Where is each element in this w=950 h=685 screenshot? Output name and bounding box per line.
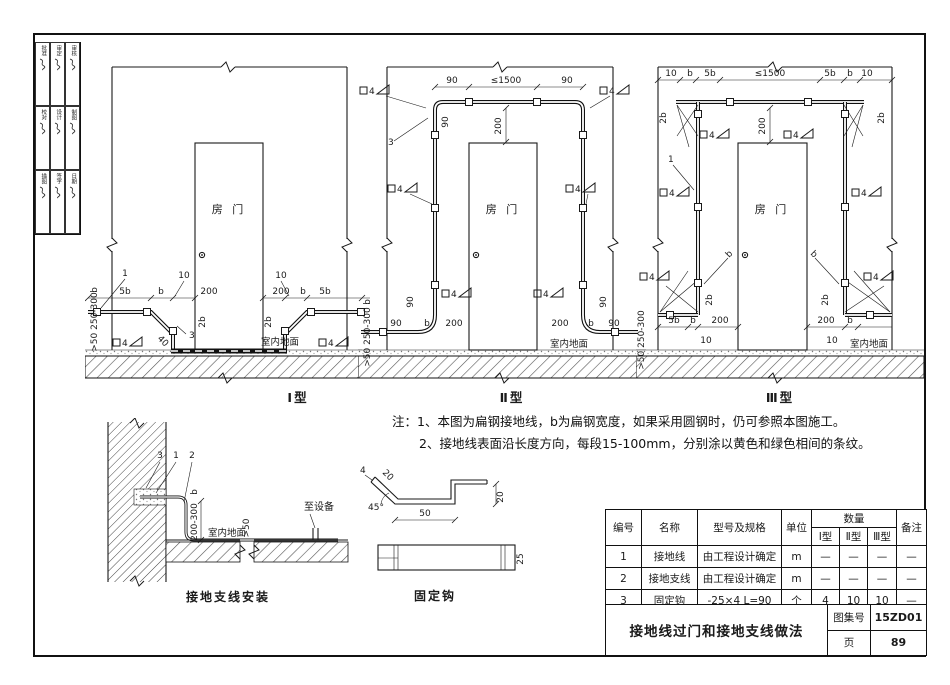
door-label: 房 门 bbox=[486, 202, 521, 216]
materials-table: 编号 名称 型号及规格 单位 数量 备注 Ⅰ型 Ⅱ型 Ⅲ型 1 接地线 由工程设… bbox=[605, 509, 927, 612]
signature-cell: 描图 bbox=[35, 170, 50, 234]
dim-label: 90 bbox=[599, 296, 609, 308]
dim-label: b bbox=[158, 287, 164, 297]
callout-1: 1 bbox=[122, 269, 128, 279]
dim-label: 40 bbox=[155, 334, 170, 349]
floor-slab bbox=[636, 350, 924, 383]
door: 房 门 bbox=[738, 143, 807, 350]
door-label: 房 门 bbox=[755, 202, 790, 216]
dim-label: b bbox=[847, 316, 853, 326]
dim-label: 90 bbox=[406, 296, 416, 308]
cell-remark: — bbox=[897, 568, 927, 590]
cell-name: 接地线 bbox=[642, 546, 698, 568]
dim-label: b bbox=[724, 249, 735, 260]
weld-clamp-symbol bbox=[388, 183, 417, 195]
dim-label: ≤1500 bbox=[491, 76, 522, 86]
dim-label: 200-300 bbox=[190, 503, 200, 541]
dim-label: 10 bbox=[826, 336, 838, 346]
dim-label: 10 bbox=[178, 271, 190, 281]
signature-cell: 制图 bbox=[65, 106, 80, 170]
diagram-type1: 房 门 1 5b b 10 200 200 b 5b 1 bbox=[85, 50, 380, 410]
dim-label: 25 bbox=[516, 553, 526, 564]
dim-label: >50 250-300 bbox=[637, 310, 647, 370]
cell-qty3: — bbox=[868, 568, 897, 590]
weld-clamp-symbol bbox=[600, 85, 629, 97]
col-header-type1: Ⅰ型 bbox=[812, 528, 840, 546]
dim-label: b bbox=[687, 69, 693, 79]
signature-scribble bbox=[68, 121, 78, 135]
hook-plan-view: 25 bbox=[378, 545, 526, 570]
dim-label: 10 bbox=[665, 69, 677, 79]
cell-unit: m bbox=[782, 546, 812, 568]
weld-clamp-symbol bbox=[566, 183, 595, 195]
dim-label: 90 bbox=[390, 319, 402, 329]
signature-label: 设计 bbox=[55, 109, 61, 120]
signature-scribble bbox=[68, 185, 78, 199]
notes: 注：1、本图为扁钢接地线，b为扁钢宽度，如果采用圆钢时，仍可参照本图施工。 2、… bbox=[392, 411, 897, 455]
title-block: 接地线过门和接地支线做法 图集号 15ZD01 页 89 bbox=[605, 604, 927, 656]
dim-label: 200 bbox=[200, 287, 217, 297]
to-equipment-label: 至设备 bbox=[304, 500, 334, 513]
dim-label: 200 bbox=[445, 319, 462, 329]
dim-label: 20 bbox=[380, 468, 395, 483]
col-header-no: 编号 bbox=[606, 510, 642, 546]
weld-clamp-symbol bbox=[113, 337, 142, 349]
dim-label: 5b bbox=[319, 287, 331, 297]
dim-label: 200 bbox=[272, 287, 289, 297]
dim-label: 5b bbox=[704, 69, 716, 79]
signature-cell: 校对 bbox=[35, 106, 50, 170]
signature-label: 签字 bbox=[55, 173, 61, 184]
floor-label: 室内地面 bbox=[550, 338, 588, 350]
weld-clamp-symbol bbox=[660, 187, 689, 199]
cell-spec: 由工程设计确定 bbox=[698, 568, 782, 590]
dim-label: 10 bbox=[700, 336, 712, 346]
dim-label: 90 bbox=[446, 76, 458, 86]
dim-label: b bbox=[690, 316, 696, 326]
signature-scribble bbox=[38, 121, 48, 135]
dim-label: 90 bbox=[441, 116, 451, 128]
weld-clamp-symbol bbox=[784, 129, 813, 141]
col-header-unit: 单位 bbox=[782, 510, 812, 546]
signature-scribble bbox=[53, 57, 63, 71]
dim-label: 45° bbox=[368, 503, 384, 513]
signature-label: 制图 bbox=[70, 109, 76, 120]
dim-label: 2b bbox=[198, 316, 208, 328]
install-caption: 接地支线安装 bbox=[186, 589, 270, 604]
signature-label: 审核 bbox=[70, 45, 76, 56]
weld-clamp-symbol bbox=[864, 271, 893, 283]
door-label: 房 门 bbox=[212, 202, 247, 216]
weld-clamp-symbol bbox=[700, 129, 729, 141]
floor-label: 室内地面 bbox=[261, 336, 299, 348]
signature-block: 批准 审定 审核 校对 设计 制图 描图 签字 日期 bbox=[35, 42, 81, 235]
detail-fixing-hook: 4 20 45° 50 20 25 固定钩 bbox=[355, 462, 535, 607]
dim-label: 5b bbox=[824, 69, 836, 79]
page-number: 89 bbox=[871, 631, 927, 657]
table-row: 1 接地线 由工程设计确定 m — — — — bbox=[606, 546, 927, 568]
dim-label: b bbox=[847, 69, 853, 79]
dim-label: 4 bbox=[360, 466, 366, 476]
type3-caption: Ⅲ型 bbox=[766, 390, 794, 405]
hook-caption: 固定钩 bbox=[414, 588, 456, 603]
dim-label: 90 bbox=[561, 76, 573, 86]
dim-label: 2b bbox=[877, 112, 887, 124]
signature-label: 日期 bbox=[70, 173, 76, 184]
weld-clamp-symbol bbox=[442, 288, 471, 300]
signature-label: 校对 bbox=[40, 109, 46, 120]
cell-remark: — bbox=[897, 546, 927, 568]
drawing-sheet: 4 批准 审定 审核 校对 设计 制图 描图 签字 日期 bbox=[0, 0, 950, 685]
type2-caption: Ⅱ型 bbox=[500, 390, 525, 405]
signature-cell: 审核 bbox=[65, 42, 80, 106]
cell-qty2: — bbox=[840, 568, 868, 590]
signature-scribble bbox=[38, 185, 48, 199]
atlas-no-label: 图集号 bbox=[828, 605, 871, 631]
signature-label: 描图 bbox=[40, 173, 46, 184]
dim-label: b bbox=[90, 287, 100, 293]
dim-label: b bbox=[424, 319, 430, 329]
cell-spec: 由工程设计确定 bbox=[698, 546, 782, 568]
hook-dimensions: 4 20 45° 50 20 bbox=[360, 466, 506, 523]
dim-label: ≤1500 bbox=[755, 69, 786, 79]
weld-clamp-symbol bbox=[360, 85, 389, 97]
signature-label: 审定 bbox=[55, 45, 61, 56]
door: 房 门 bbox=[469, 143, 537, 350]
ground-wire bbox=[88, 309, 365, 352]
weld-clamp-symbol bbox=[852, 187, 881, 199]
signature-scribble bbox=[53, 185, 63, 199]
dim-label: 20 bbox=[496, 491, 506, 503]
sheet-title: 接地线过门和接地支线做法 bbox=[606, 605, 828, 656]
callout-1: 1 bbox=[668, 155, 674, 165]
dimensions: 90 ≤1500 90 3 90 200 90 90 90 b 200 200 bbox=[360, 76, 629, 367]
cell-no: 1 bbox=[606, 546, 642, 568]
dim-label: 5b bbox=[119, 287, 131, 297]
signature-cell: 审定 bbox=[50, 42, 65, 106]
dim-label: >50 250-300 bbox=[363, 307, 373, 367]
col-header-name: 名称 bbox=[642, 510, 698, 546]
cell-qty3: — bbox=[868, 546, 897, 568]
table-row: 2 接地支线 由工程设计确定 m — — — — bbox=[606, 568, 927, 590]
callout-1: 1 bbox=[173, 451, 179, 461]
col-header-spec: 型号及规格 bbox=[698, 510, 782, 546]
dim-label: 200 bbox=[494, 117, 504, 134]
cell-qty2: — bbox=[840, 546, 868, 568]
signature-scribble bbox=[53, 121, 63, 135]
dim-label: 50 bbox=[419, 509, 431, 519]
callout-3: 3 bbox=[157, 451, 163, 461]
col-header-qty: 数量 bbox=[812, 510, 897, 528]
dim-label: 10 bbox=[275, 271, 287, 281]
type1-caption: Ⅰ型 bbox=[287, 390, 308, 405]
callout-3: 3 bbox=[388, 138, 394, 148]
dim-label: >50 250-300 bbox=[90, 292, 100, 352]
dimensions: 10 b 5b ≤1500 5b b 10 2b 2b 200 1 b b bbox=[637, 69, 895, 370]
col-header-type3: Ⅲ型 bbox=[868, 528, 897, 546]
dim-label: b bbox=[363, 299, 373, 305]
signature-scribble bbox=[68, 57, 78, 71]
dim-label: b bbox=[588, 319, 594, 329]
dim-label: b bbox=[300, 287, 306, 297]
weld-clamp-symbol bbox=[319, 337, 348, 349]
dim-label: 200 bbox=[711, 316, 728, 326]
weld-clamp-symbol bbox=[640, 271, 669, 283]
floor-slab bbox=[166, 540, 348, 562]
diagram-type2: 房 门 90 ≤1500 90 3 90 200 bbox=[358, 50, 648, 410]
dim-label: 200 bbox=[551, 319, 568, 329]
dim-label: b bbox=[190, 489, 200, 495]
floor-label: 室内地面 bbox=[850, 338, 888, 350]
cell-qty1: — bbox=[812, 568, 840, 590]
detail-branch-install: 3 1 2 b 200-300 >50 室内地面 至设备 接地支线安装 bbox=[100, 418, 355, 613]
diagram-type3: 房 门 10 b bbox=[636, 50, 926, 410]
weld-clamp-symbol bbox=[534, 288, 563, 300]
signature-cell: 设计 bbox=[50, 106, 65, 170]
col-header-remark: 备注 bbox=[897, 510, 927, 546]
callout-3: 3 bbox=[189, 331, 195, 341]
note-line-1: 注：1、本图为扁钢接地线，b为扁钢宽度，如果采用圆钢时，仍可参照本图施工。 bbox=[392, 411, 897, 433]
signature-cell: 日期 bbox=[65, 170, 80, 234]
atlas-no-value: 15ZD01 bbox=[871, 605, 927, 631]
signature-cell: 批准 bbox=[35, 42, 50, 106]
floor-label: 室内地面 bbox=[208, 527, 246, 539]
signature-scribble bbox=[38, 57, 48, 71]
page-label: 页 bbox=[828, 631, 871, 657]
cell-qty1: — bbox=[812, 546, 840, 568]
note-line-2: 2、接地线表面沿长度方向，每段15-100mm，分别涂以黄色和绿色相间的条纹。 bbox=[392, 433, 897, 455]
dim-label: 10 bbox=[861, 69, 873, 79]
dim-label: 90 bbox=[608, 319, 620, 329]
callout-2: 2 bbox=[189, 451, 195, 461]
dim-label: 200 bbox=[758, 117, 768, 134]
cell-no: 2 bbox=[606, 568, 642, 590]
dim-label: b bbox=[808, 249, 819, 260]
col-header-type2: Ⅱ型 bbox=[840, 528, 868, 546]
dim-label: 2b bbox=[705, 294, 715, 306]
signature-label: 批准 bbox=[40, 45, 46, 56]
signature-cell: 签字 bbox=[50, 170, 65, 234]
floor-slab bbox=[358, 350, 646, 383]
floor-slab bbox=[85, 350, 362, 383]
dim-label: 5b bbox=[668, 316, 680, 326]
cell-name: 接地支线 bbox=[642, 568, 698, 590]
dim-label: 2b bbox=[659, 112, 669, 124]
dim-label: 2b bbox=[264, 316, 274, 328]
dim-label: 200 bbox=[817, 316, 834, 326]
dim-label: 2b bbox=[821, 294, 831, 306]
cell-unit: m bbox=[782, 568, 812, 590]
